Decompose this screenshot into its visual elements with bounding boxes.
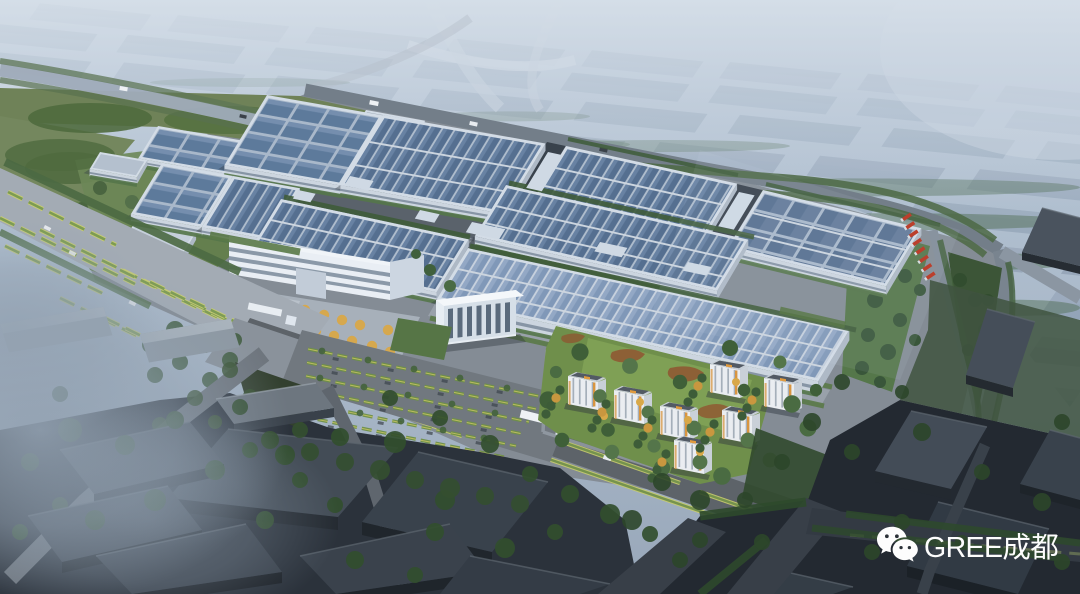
- svg-text:GREE成都: GREE成都: [924, 532, 1058, 564]
